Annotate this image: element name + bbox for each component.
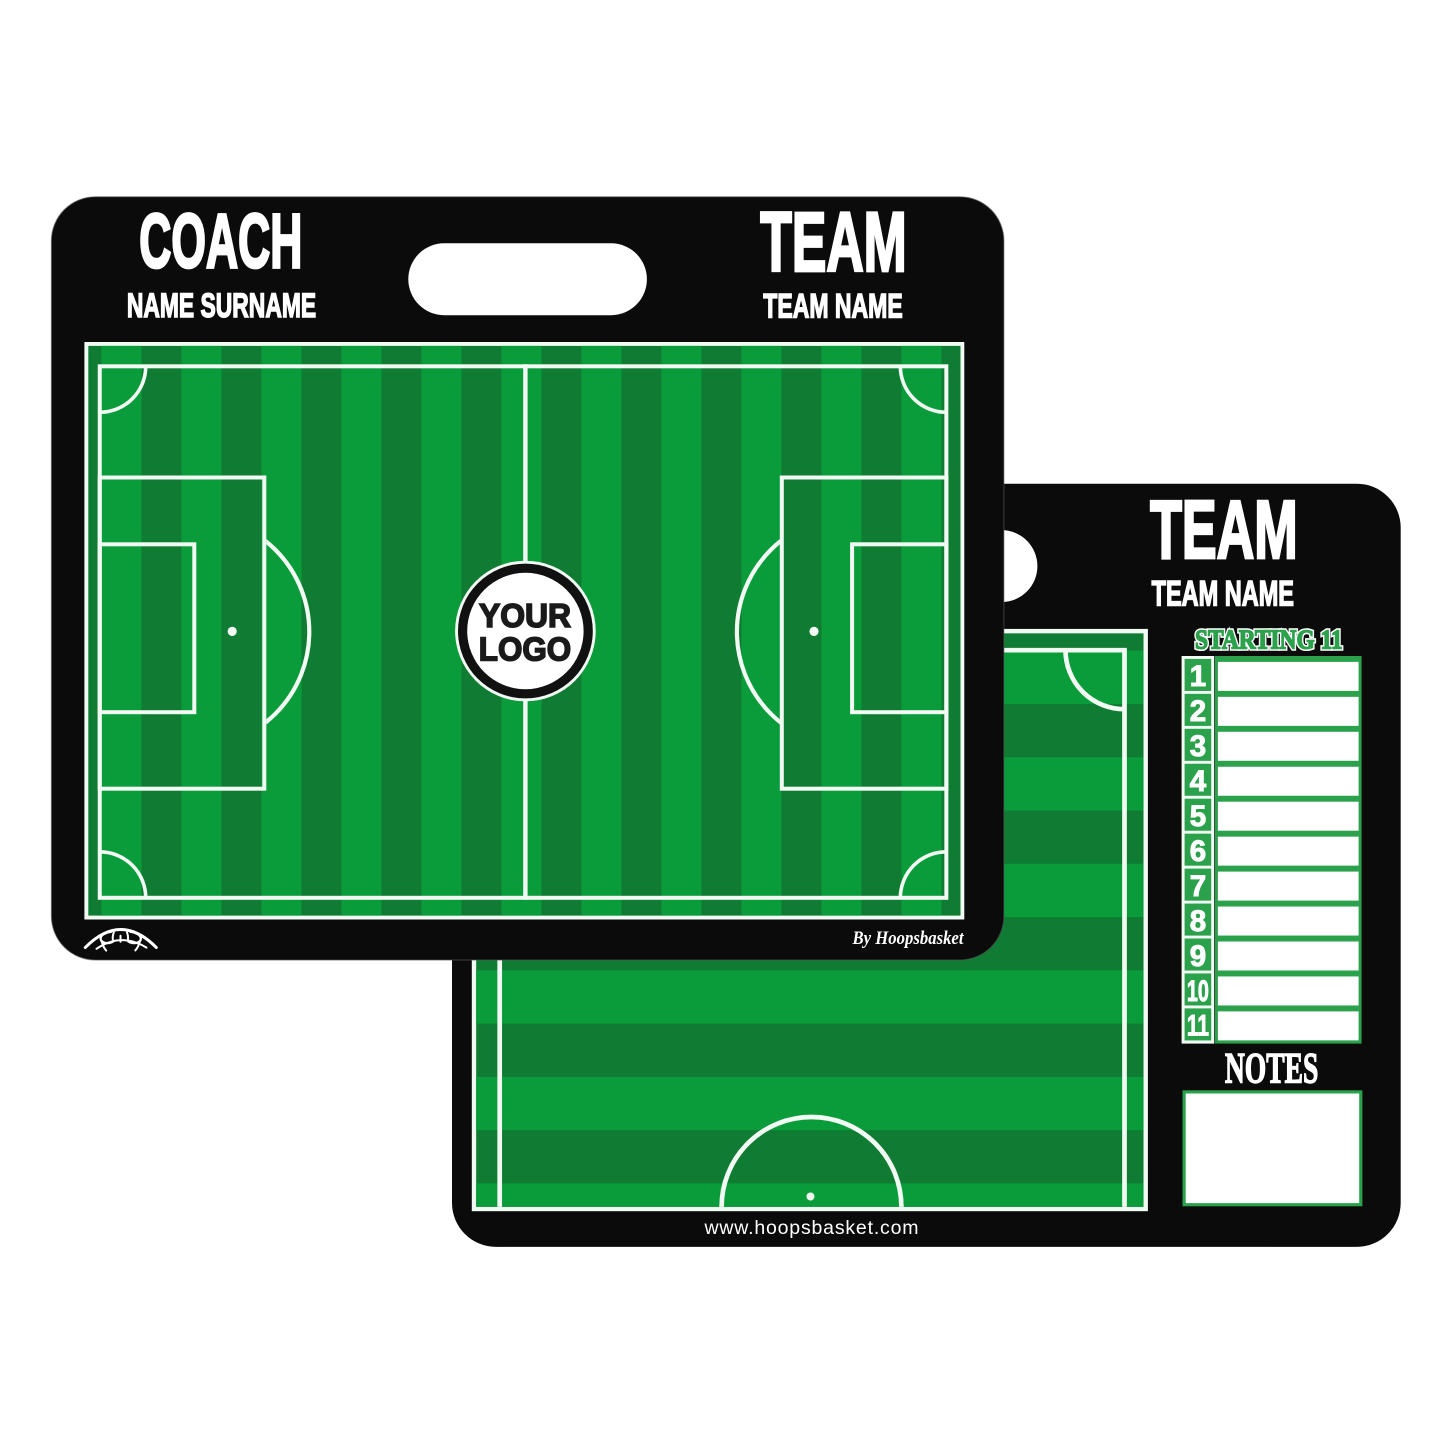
svg-text:1: 1 (1190, 660, 1206, 693)
svg-text:8: 8 (1190, 905, 1206, 938)
svg-text:LOGO: LOGO (479, 631, 571, 668)
svg-text:NOTES: NOTES (1225, 1044, 1319, 1092)
svg-text:NAME SURNAME: NAME SURNAME (127, 287, 316, 325)
svg-text:9: 9 (1190, 940, 1206, 973)
svg-text:TEAM NAME: TEAM NAME (763, 287, 902, 325)
svg-text:4: 4 (1190, 765, 1207, 798)
svg-text:By Hoopsbasket: By Hoopsbasket (852, 928, 965, 949)
svg-text:11: 11 (1187, 1010, 1209, 1043)
svg-text:2: 2 (1190, 695, 1206, 728)
svg-text:5: 5 (1190, 800, 1206, 833)
svg-text:STARTING 11: STARTING 11 (1195, 625, 1343, 655)
svg-text:3: 3 (1190, 730, 1206, 763)
svg-text:6: 6 (1190, 835, 1206, 868)
svg-text:www.hoopsbasket.com: www.hoopsbasket.com (704, 1217, 919, 1239)
svg-text:7: 7 (1190, 870, 1206, 903)
svg-text:TEAM: TEAM (1150, 483, 1298, 576)
svg-text:COACH: COACH (139, 198, 302, 284)
svg-text:10: 10 (1187, 975, 1209, 1008)
svg-text:TEAM: TEAM (760, 195, 907, 289)
svg-text:TEAM NAME: TEAM NAME (1152, 574, 1294, 613)
svg-text:YOUR: YOUR (479, 597, 571, 634)
